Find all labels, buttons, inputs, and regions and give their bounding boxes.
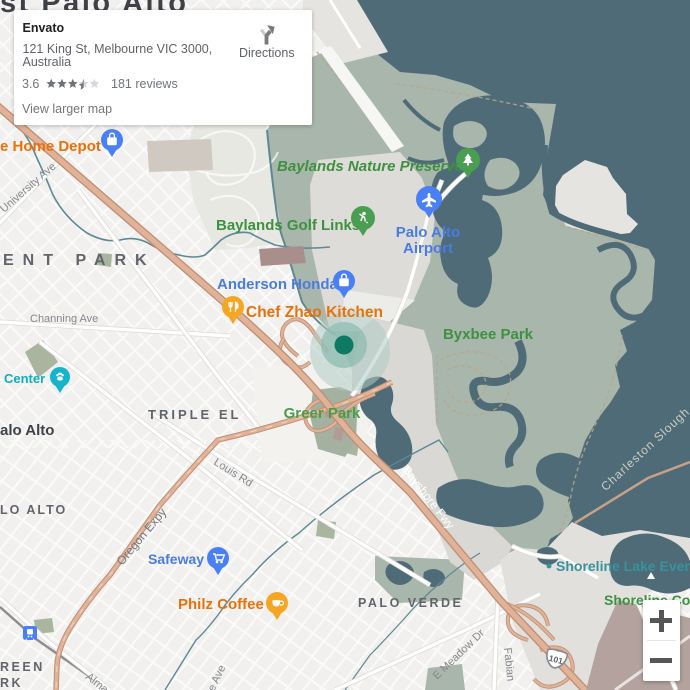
svg-text:Byxbee Park: Byxbee Park (443, 326, 534, 343)
svg-text:Airport: Airport (403, 240, 453, 257)
svg-text:Center: Center (4, 371, 45, 386)
svg-text:Greer Park: Greer Park (284, 405, 361, 422)
svg-text:Safeway: Safeway (148, 551, 204, 567)
svg-text:RK: RK (0, 676, 23, 690)
svg-text:Chef Zhao Kitchen: Chef Zhao Kitchen (246, 304, 383, 321)
svg-text:Anderson Honda: Anderson Honda (217, 276, 338, 293)
svg-text:Palo Alto: Palo Alto (396, 224, 460, 241)
svg-text:Philz Coffee: Philz Coffee (178, 596, 264, 613)
svg-text:Shoreline Lake Even: Shoreline Lake Even (556, 558, 690, 574)
svg-text:ENT PARK: ENT PARK (3, 252, 156, 269)
svg-text:Channing Ave: Channing Ave (30, 313, 98, 325)
svg-text:Baylands Nature Preserve: Baylands Nature Preserve (277, 158, 463, 175)
svg-text:LO ALTO: LO ALTO (0, 503, 67, 517)
svg-text:TRIPLE EL: TRIPLE EL (148, 407, 241, 422)
svg-text:PALO VERDE: PALO VERDE (358, 596, 463, 610)
svg-text:Baylands Golf Links: Baylands Golf Links (216, 217, 360, 234)
svg-text:e Home Depot: e Home Depot (0, 138, 101, 155)
svg-text:alo Alto: alo Alto (0, 422, 54, 439)
svg-text:REEN: REEN (0, 660, 45, 674)
